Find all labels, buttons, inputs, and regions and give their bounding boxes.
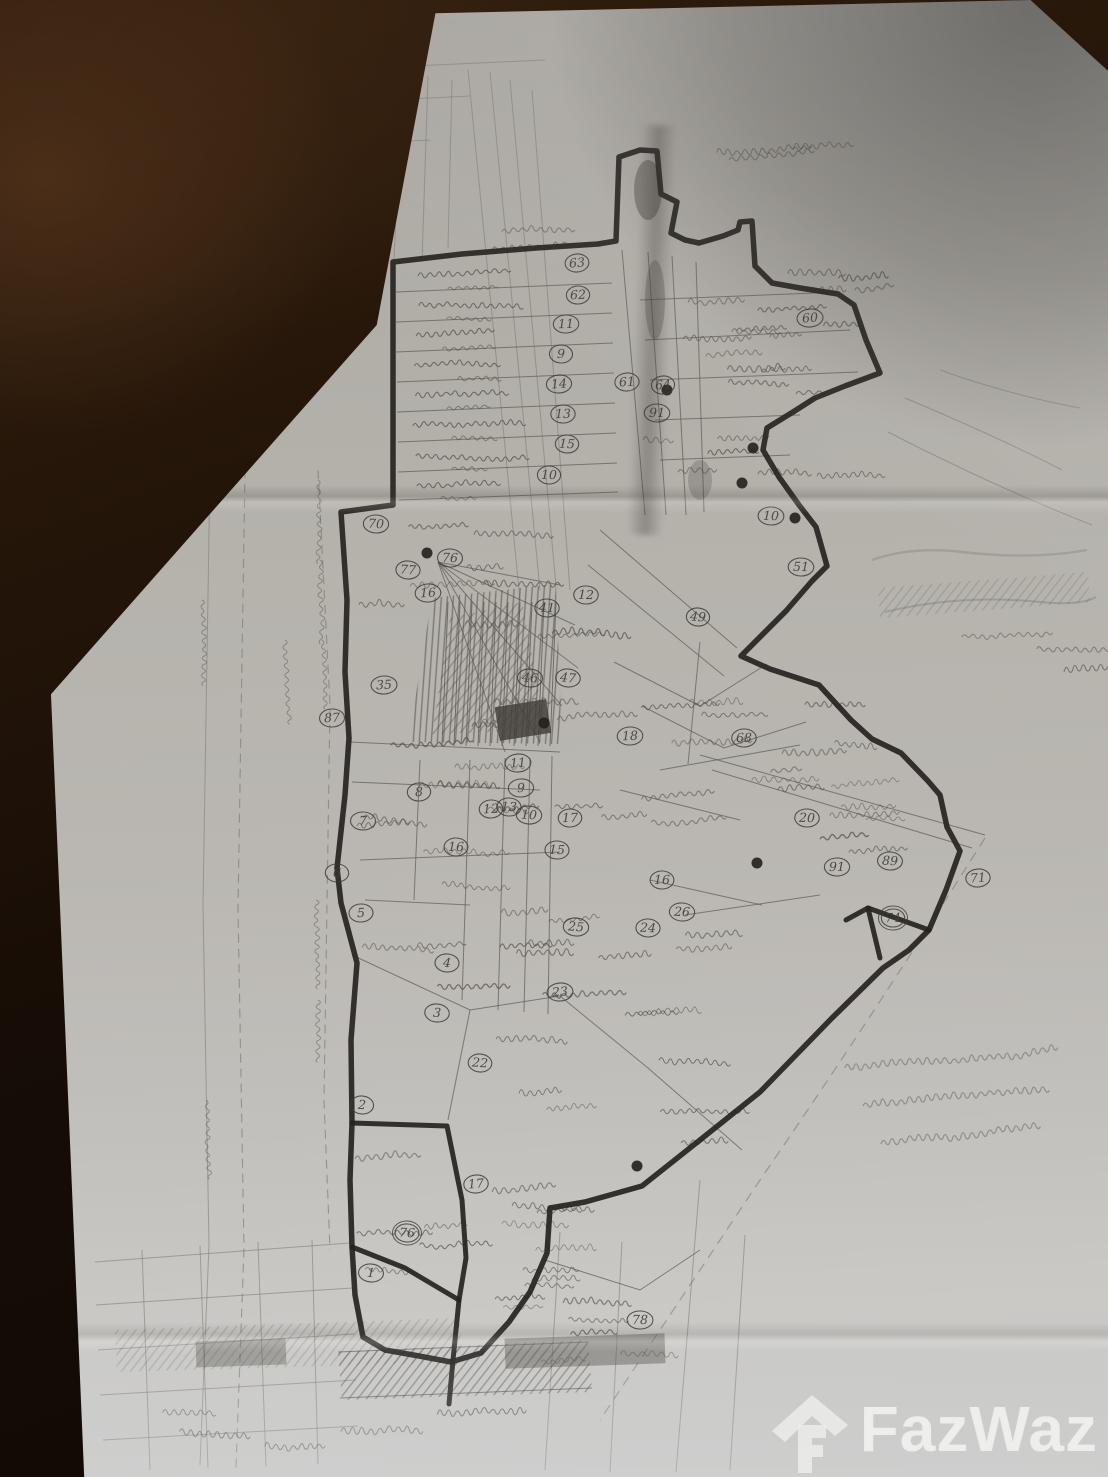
svg-text:9: 9 [517,780,526,795]
svg-text:62: 62 [570,287,587,303]
svg-text:11: 11 [510,755,527,771]
svg-text:25: 25 [567,918,585,934]
photo-of-folded-cadastral-map: 6362119146164911315107076771612416010514… [0,0,1108,1477]
svg-text:87: 87 [324,710,340,726]
svg-text:5: 5 [357,905,366,920]
svg-text:24: 24 [639,920,657,936]
svg-text:13: 13 [555,406,571,421]
svg-text:6: 6 [333,865,342,880]
svg-text:51: 51 [793,559,809,574]
svg-text:18: 18 [622,728,638,744]
svg-text:91: 91 [649,405,665,420]
svg-text:77: 77 [400,562,417,578]
svg-text:4: 4 [442,955,452,970]
svg-text:10: 10 [541,467,557,482]
svg-text:89: 89 [882,853,899,869]
svg-text:16: 16 [448,839,464,854]
svg-text:70: 70 [368,516,385,532]
folded-map-paper: 6362119146164911315107076771612416010514… [0,0,1108,1477]
svg-text:10: 10 [521,807,538,823]
svg-text:20: 20 [798,810,815,826]
hatched-areas [115,160,1090,1400]
svg-text:11: 11 [558,316,574,332]
svg-text:63: 63 [568,254,585,270]
cadastral-map-drawing: 6362119146164911315107076771612416010514… [0,0,1108,1477]
svg-text:8: 8 [415,784,424,799]
svg-text:23: 23 [550,983,568,999]
svg-text:12: 12 [578,587,594,602]
handwritten-pencil-note [845,1044,1059,1147]
svg-text:78: 78 [632,1312,648,1327]
svg-text:91: 91 [829,859,845,874]
fazwaz-house-icon [768,1385,852,1473]
svg-text:35: 35 [376,677,393,693]
survey-marker-dots [422,385,801,1172]
svg-text:15: 15 [559,436,576,452]
svg-text:3: 3 [432,1005,441,1021]
svg-text:46: 46 [521,669,539,685]
thin-parcel-boundaries [338,250,985,1398]
fazwaz-watermark: FazWaz [768,1385,1098,1473]
svg-text:74: 74 [885,910,901,925]
svg-text:61: 61 [619,374,636,390]
svg-text:1: 1 [367,1265,376,1281]
svg-text:22: 22 [471,1054,489,1070]
svg-text:15: 15 [549,842,565,858]
svg-text:2: 2 [357,1097,367,1113]
svg-text:9: 9 [557,346,566,361]
svg-text:60: 60 [801,309,818,325]
fazwaz-watermark-text: FazWaz [860,1392,1098,1466]
svg-text:64: 64 [655,376,672,392]
svg-text:7: 7 [359,813,367,828]
svg-text:17: 17 [467,1175,484,1191]
svg-text:68: 68 [736,730,752,745]
svg-text:14: 14 [551,376,568,392]
svg-text:26: 26 [673,904,691,920]
svg-text:17: 17 [562,810,578,825]
svg-text:16: 16 [420,585,437,601]
thick-land-boundary-line [337,150,960,1404]
svg-text:13: 13 [501,799,517,815]
svg-text:10: 10 [763,508,779,523]
svg-text:47: 47 [558,669,576,685]
svg-text:41: 41 [538,600,555,615]
svg-text:16: 16 [654,872,670,887]
svg-text:71: 71 [969,869,986,885]
svg-text:76: 76 [442,550,458,566]
faint-pencil-parcel-lines [95,60,1096,1472]
svg-text:76: 76 [399,1225,416,1241]
svg-text:49: 49 [689,608,707,624]
parcel-number-circles: 6362119146164911315107076771612416010514… [319,253,991,1329]
